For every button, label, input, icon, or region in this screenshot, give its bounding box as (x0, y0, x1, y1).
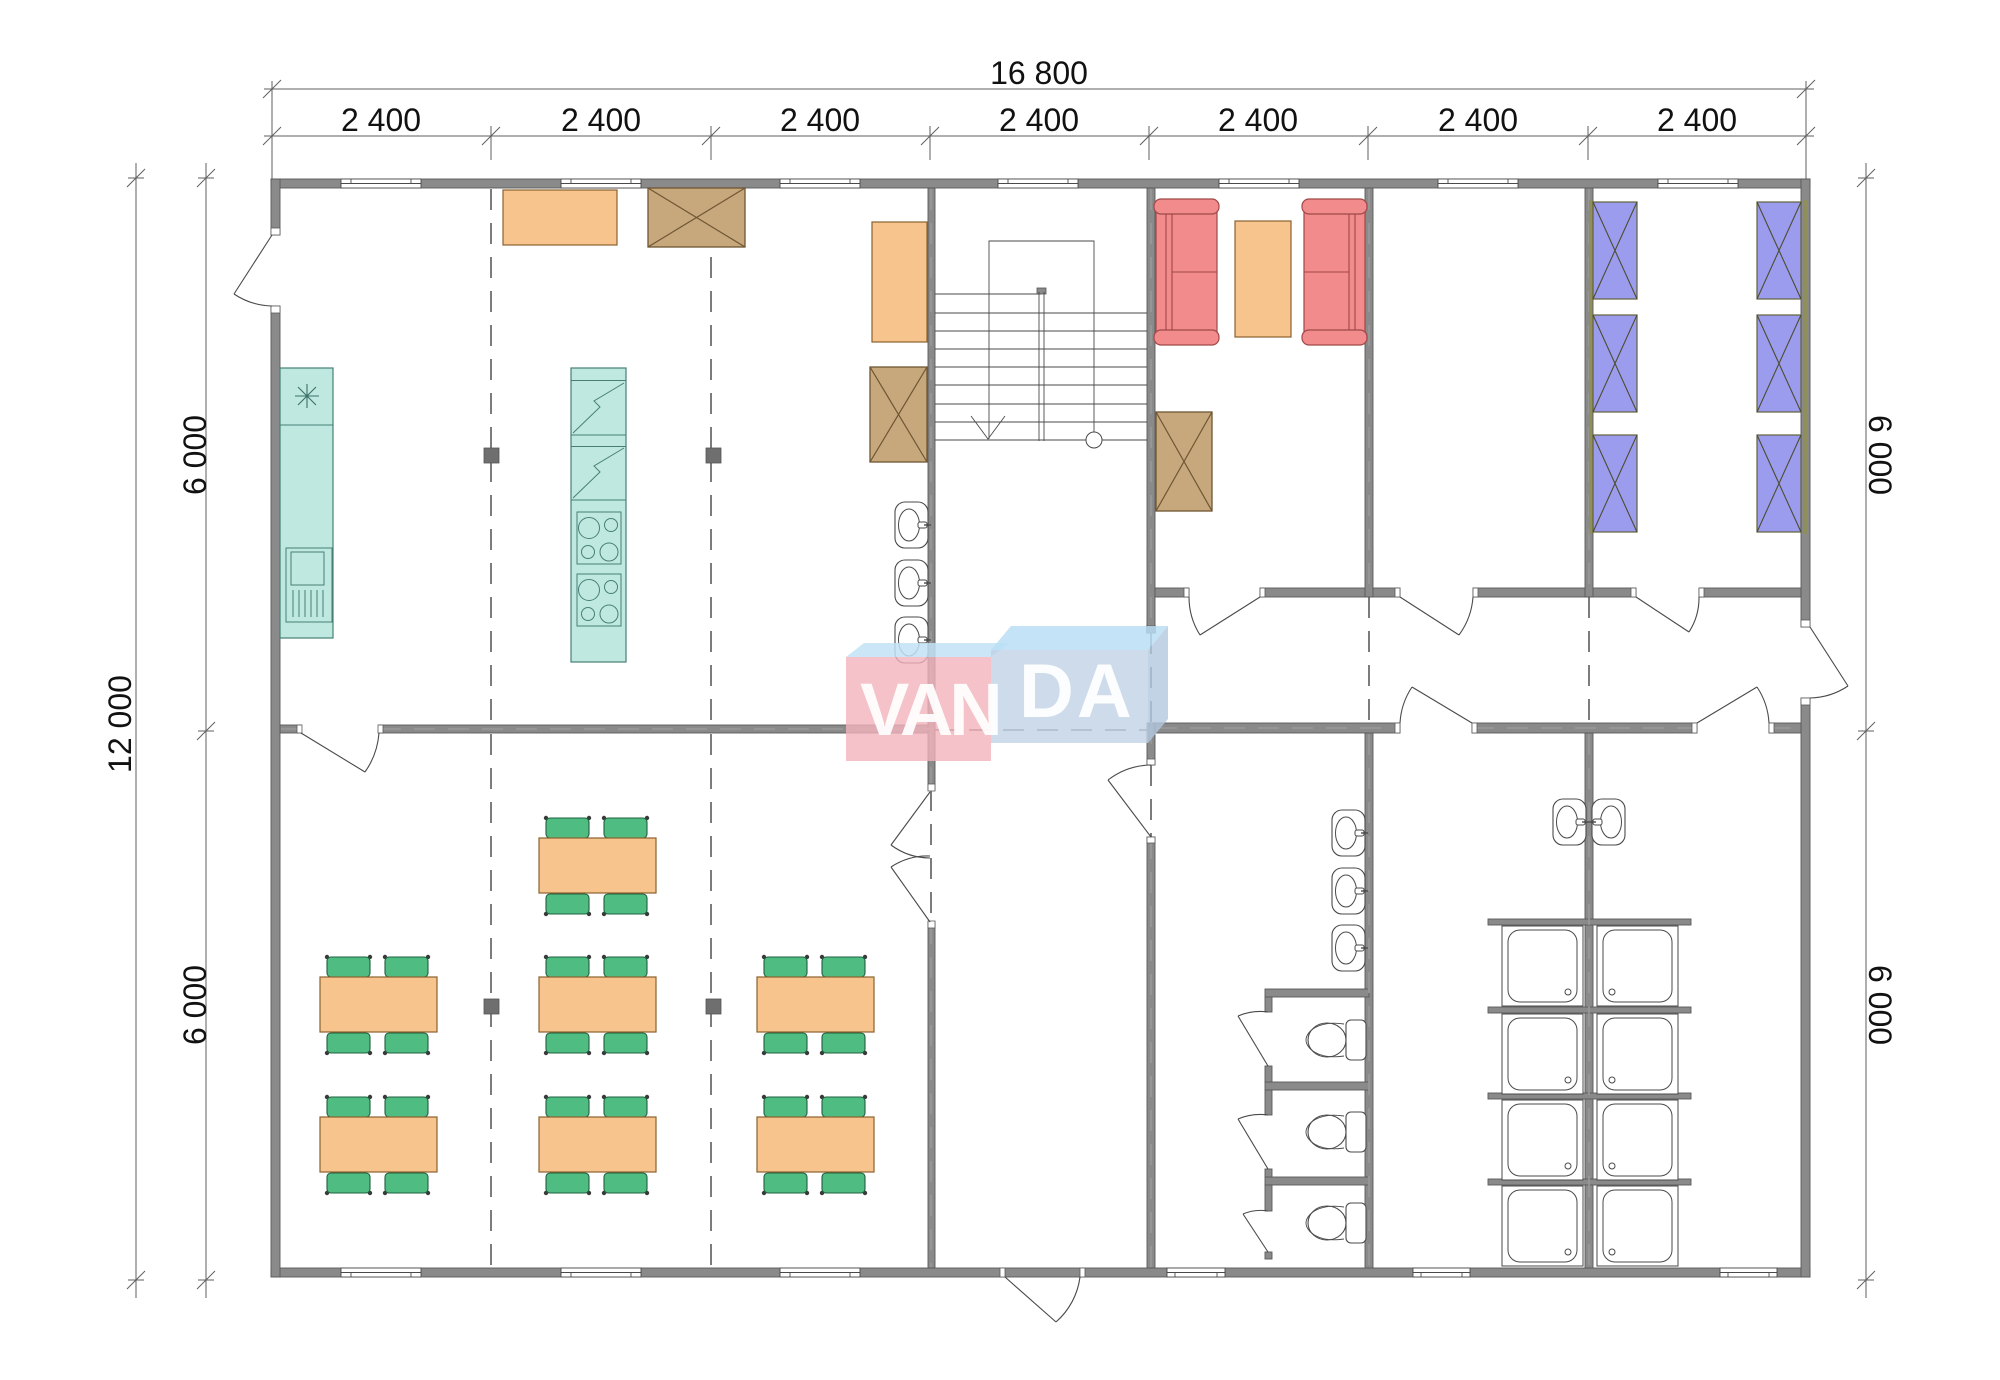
svg-text:12 000: 12 000 (102, 675, 138, 773)
svg-text:6 000: 6 000 (177, 965, 213, 1045)
svg-text:2 400: 2 400 (1657, 102, 1737, 138)
svg-text:2 400: 2 400 (341, 102, 421, 138)
svg-text:2 400: 2 400 (561, 102, 641, 138)
svg-text:6 000: 6 000 (177, 415, 213, 495)
svg-text:2 400: 2 400 (1218, 102, 1298, 138)
svg-text:VAN: VAN (860, 668, 999, 751)
svg-text:16 800: 16 800 (990, 55, 1088, 91)
svg-text:2 400: 2 400 (999, 102, 1079, 138)
svg-text:2 400: 2 400 (1438, 102, 1518, 138)
svg-text:6 000: 6 000 (1862, 415, 1898, 495)
svg-text:DA: DA (1019, 649, 1135, 734)
svg-text:2 400: 2 400 (780, 102, 860, 138)
svg-text:6 000: 6 000 (1862, 965, 1898, 1045)
